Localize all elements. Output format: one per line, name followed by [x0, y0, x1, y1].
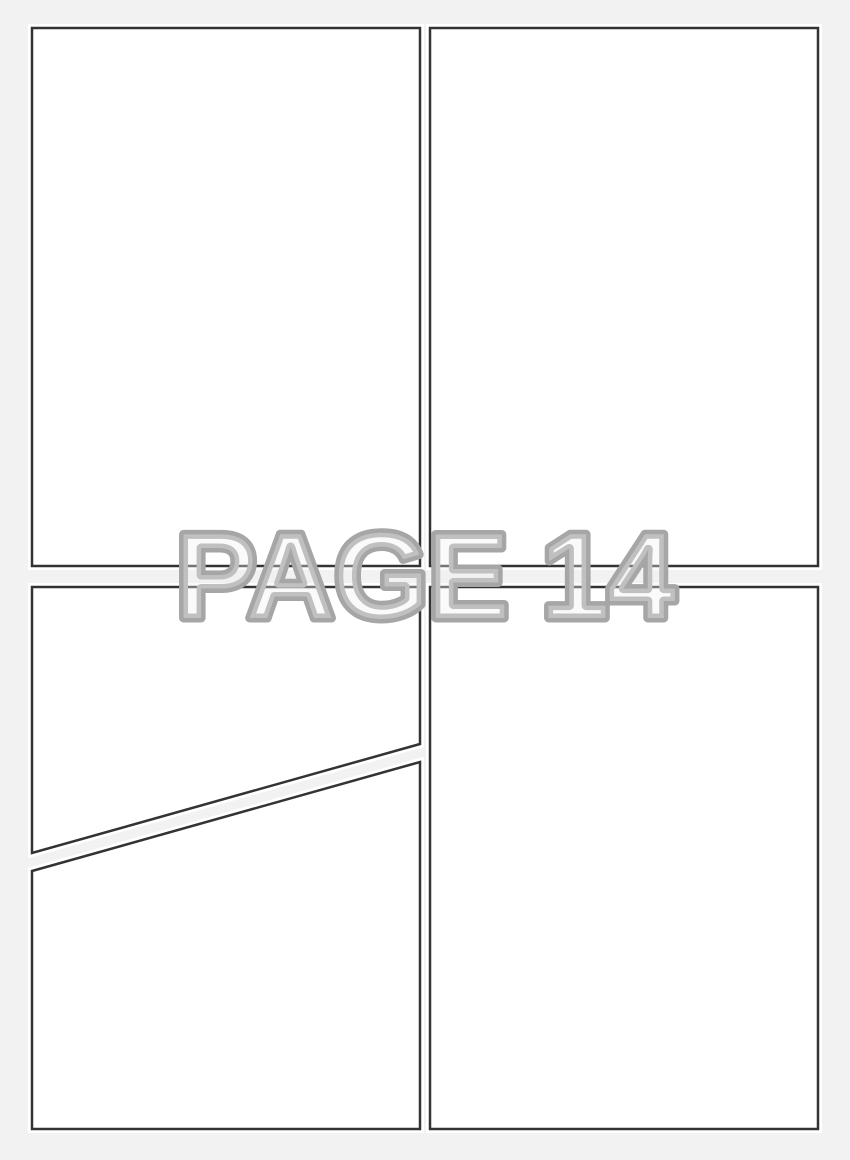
page-number-label: PAGE 14 PAGE 14	[175, 508, 675, 644]
page-number-label-text: PAGE 14	[175, 508, 675, 644]
comic-page-canvas: PAGE 14 PAGE 14	[0, 0, 850, 1160]
panel-top-left	[32, 28, 420, 566]
panel-bottom-right	[430, 587, 818, 1129]
comic-page-template: PAGE 14 PAGE 14	[0, 0, 850, 1160]
panel-top-right	[430, 28, 818, 566]
